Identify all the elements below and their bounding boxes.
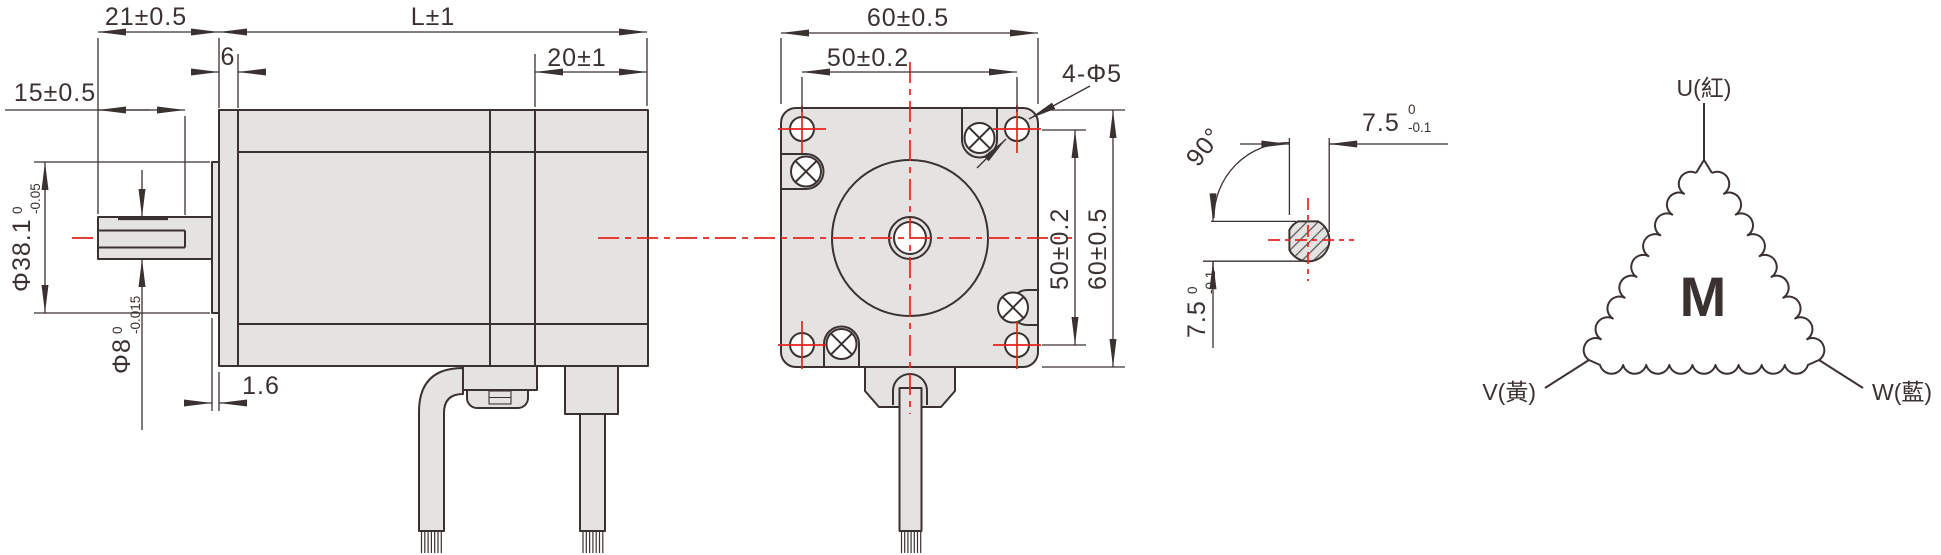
svg-text:7.5: 7.5 — [1183, 300, 1211, 338]
dim-rear-cap-label: 20±1 — [547, 44, 606, 72]
svg-text:0: 0 — [10, 206, 25, 214]
svg-text:-0.015: -0.015 — [128, 296, 143, 334]
terminal-u-label: U(紅) — [1677, 75, 1732, 101]
dim-hole-pitch-label: 50±0.2 — [827, 44, 909, 72]
screw-mark-icon — [827, 329, 857, 359]
svg-text:Φ8: Φ8 — [108, 338, 136, 374]
cable-clamp — [467, 390, 528, 408]
screw-mark-icon — [965, 123, 995, 153]
svg-text:7.5: 7.5 — [1362, 109, 1400, 137]
dim-boss-thickness-label: 1.6 — [242, 372, 280, 400]
svg-text:60±0.5: 60±0.5 — [1084, 208, 1112, 290]
dim-hole-pitch-v-label: 50±0.2 — [1046, 208, 1074, 290]
svg-text:Φ38.1: Φ38.1 — [8, 218, 36, 292]
terminal-w-label: W(藍) — [1872, 379, 1932, 405]
dim-front-step-label: 6 — [221, 43, 236, 71]
svg-text:-0.05: -0.05 — [28, 183, 43, 214]
motor-body — [219, 110, 648, 366]
technical-drawing-canvas: 21±0.5 L±1 6 20±1 15±0.5 Φ38.1 0 -0.05 — [0, 0, 1941, 555]
dim-flange-height-label: 60±0.5 — [1084, 208, 1112, 290]
motor-symbol: M — [1680, 265, 1727, 328]
drawing-sheet: 21±0.5 L±1 6 20±1 15±0.5 Φ38.1 0 -0.05 — [0, 0, 1941, 555]
screw-mark-icon — [791, 157, 821, 187]
dim-flange-width-label: 60±0.5 — [867, 4, 949, 32]
svg-text:0: 0 — [1185, 286, 1200, 294]
svg-text:-0.1: -0.1 — [1408, 120, 1431, 135]
screw-mark-icon — [998, 293, 1028, 323]
shaft — [98, 217, 212, 259]
cable-gland-front — [463, 366, 537, 390]
terminal-v-label: V(黃) — [1482, 379, 1536, 405]
svg-text:-0.1: -0.1 — [1203, 271, 1218, 294]
hole-callout-label: 4-Φ5 — [1062, 60, 1122, 88]
cable-wires — [902, 531, 921, 553]
cable-gland-rear — [565, 366, 618, 414]
cable-wires — [422, 531, 442, 553]
cable-rear — [580, 414, 605, 531]
svg-text:50±0.2: 50±0.2 — [1046, 208, 1074, 290]
mounting-boss — [212, 162, 219, 313]
dim-flat-length-label: 15±0.5 — [14, 79, 96, 107]
section-shape — [1289, 221, 1329, 261]
dim-shaft-extension-label: 21±0.5 — [105, 3, 187, 31]
svg-text:0: 0 — [110, 326, 125, 334]
cable-front-view — [900, 388, 922, 531]
dim-body-length-label: L±1 — [411, 3, 456, 31]
cable-wires — [583, 531, 603, 553]
svg-text:0: 0 — [1408, 102, 1416, 117]
